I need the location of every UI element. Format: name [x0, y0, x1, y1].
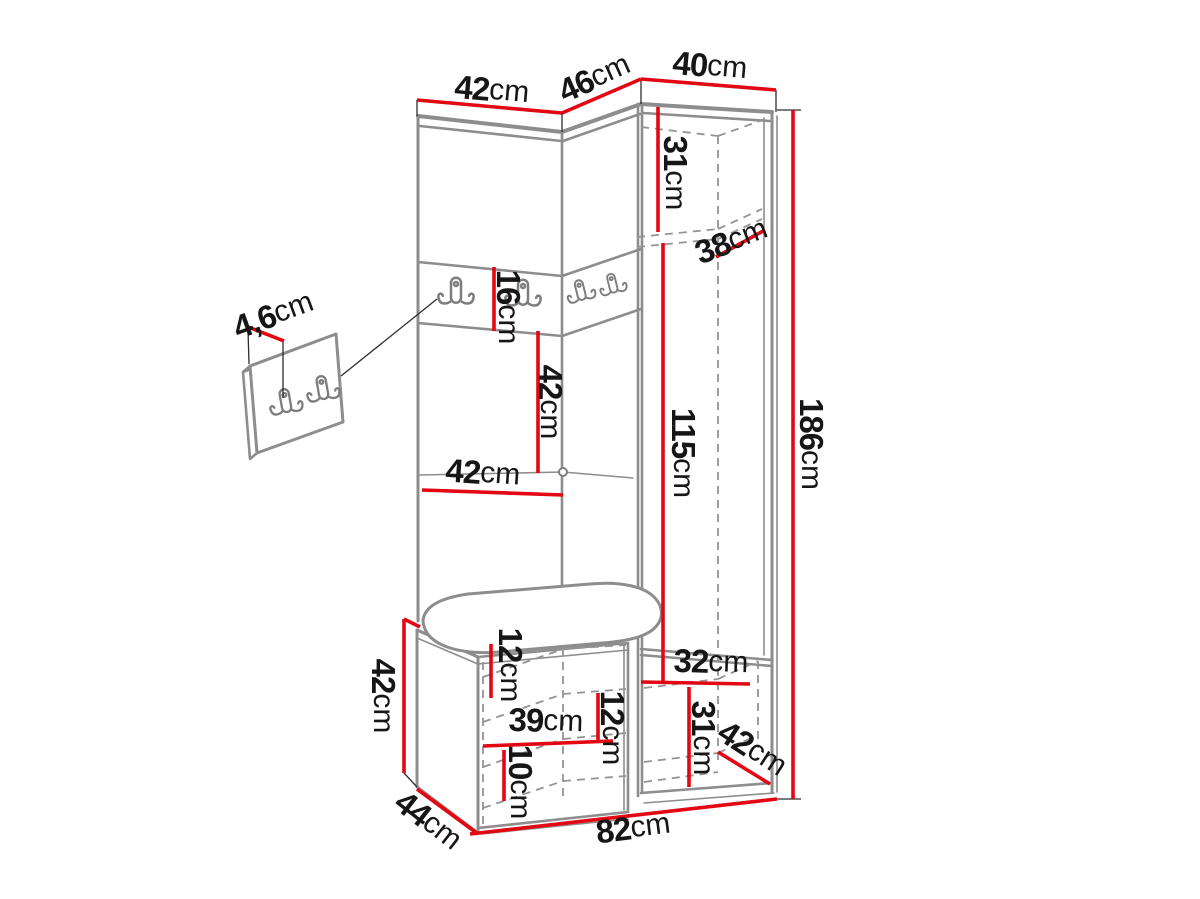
- dim-label-bench-middle-clearance: 12cm: [595, 691, 632, 766]
- hook-rail-bottom: [418, 309, 641, 336]
- dim-label-niche-height: 42cm: [533, 365, 570, 440]
- shelf-marker: [559, 468, 567, 476]
- diagram-svg: 42cm 46cm 40cm 186cm 31cm 38cm 16cm 42cm…: [0, 0, 1200, 899]
- dim-label-bench-top-clearance: 12cm: [493, 628, 530, 703]
- dim-line-bench-shelf-width: [483, 741, 613, 746]
- furniture-dimension-diagram: 42cm 46cm 40cm 186cm 31cm 38cm 16cm 42cm…: [0, 0, 1200, 899]
- dim-label-total-width: 82cm: [594, 804, 673, 850]
- dim-label-bench-shelf-width: 39cm: [508, 700, 584, 740]
- dim-label-niche-width: 42cm: [444, 451, 521, 493]
- dim-label-top-left-width: 42cm: [453, 67, 531, 110]
- dim-label-top-depth: 38cm: [689, 209, 772, 270]
- coat-hook-icon: [438, 278, 473, 304]
- dim-label-bench-height: 42cm: [366, 659, 403, 734]
- coat-hook-icon: [564, 277, 596, 304]
- dim-line-lower-compartment-width: [641, 682, 750, 684]
- dim-label-total-height: 186cm: [794, 398, 831, 490]
- dim-label-bench-bottom-clearance: 10cm: [503, 745, 540, 820]
- dim-line-niche-width: [422, 490, 563, 495]
- wardrobe-bottom-edge: [641, 783, 772, 793]
- corner-edge: [638, 104, 642, 796]
- detail-leader-line: [341, 299, 437, 376]
- dim-label-hook-rail-height: 16cm: [491, 270, 528, 345]
- dim-label-top-right-width: 40cm: [671, 43, 749, 86]
- dim-label-door-section-height: 115cm: [666, 408, 703, 498]
- dim-label-upper-compartment-height: 31cm: [658, 136, 695, 211]
- dim-label-lower-compartment-width: 32cm: [673, 641, 749, 681]
- coat-hook-icon: [597, 271, 628, 296]
- dimension-labels: 42cm 46cm 40cm 186cm 31cm 38cm 16cm 42cm…: [228, 43, 831, 857]
- hook-rail-top: [418, 249, 641, 276]
- hook-rail-hooks: [438, 271, 627, 306]
